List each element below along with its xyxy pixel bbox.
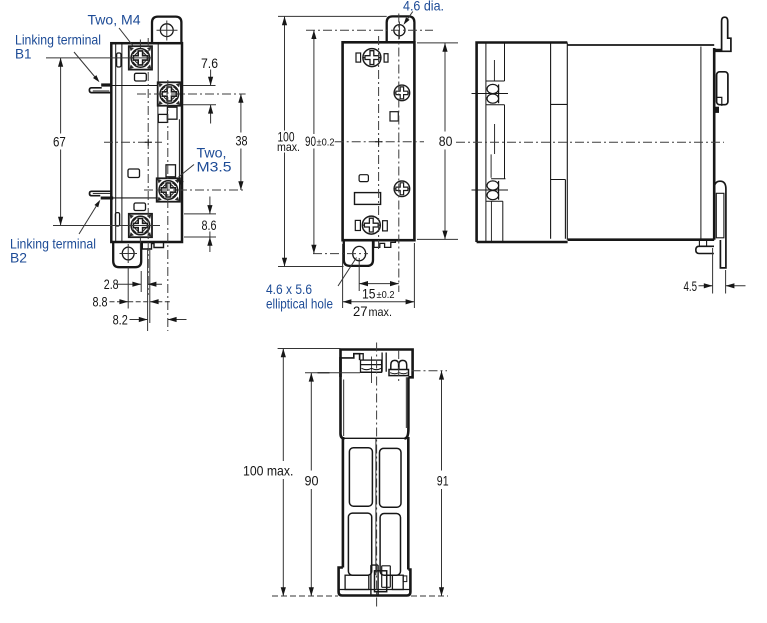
svg-text:Two, M4: Two, M4 — [88, 12, 141, 28]
svg-text:elliptical hole: elliptical hole — [266, 295, 333, 311]
svg-text:67: 67 — [53, 134, 66, 150]
svg-text:B1: B1 — [15, 46, 32, 62]
svg-text:2.8: 2.8 — [104, 276, 119, 292]
svg-text:80: 80 — [439, 133, 453, 149]
svg-text:±0.2: ±0.2 — [377, 290, 395, 301]
svg-text:8.2: 8.2 — [113, 312, 128, 328]
svg-text:90: 90 — [305, 133, 316, 149]
svg-text:38: 38 — [236, 132, 248, 148]
svg-text:91: 91 — [437, 472, 449, 488]
svg-text:8.8: 8.8 — [93, 293, 108, 309]
svg-text:max.: max. — [369, 305, 393, 319]
svg-text:90: 90 — [305, 472, 319, 488]
svg-text:±0.2: ±0.2 — [317, 138, 335, 149]
svg-text:4.6 dia.: 4.6 dia. — [403, 0, 444, 14]
svg-text:B2: B2 — [10, 250, 27, 266]
svg-text:max.: max. — [277, 140, 300, 154]
svg-text:4.5: 4.5 — [684, 278, 698, 294]
svg-text:M3.5: M3.5 — [197, 159, 232, 175]
svg-text:27: 27 — [353, 303, 368, 319]
svg-text:7.6: 7.6 — [201, 55, 218, 71]
svg-text:8.6: 8.6 — [202, 217, 217, 233]
svg-text:100 max.: 100 max. — [243, 462, 293, 478]
svg-text:15: 15 — [362, 285, 376, 301]
